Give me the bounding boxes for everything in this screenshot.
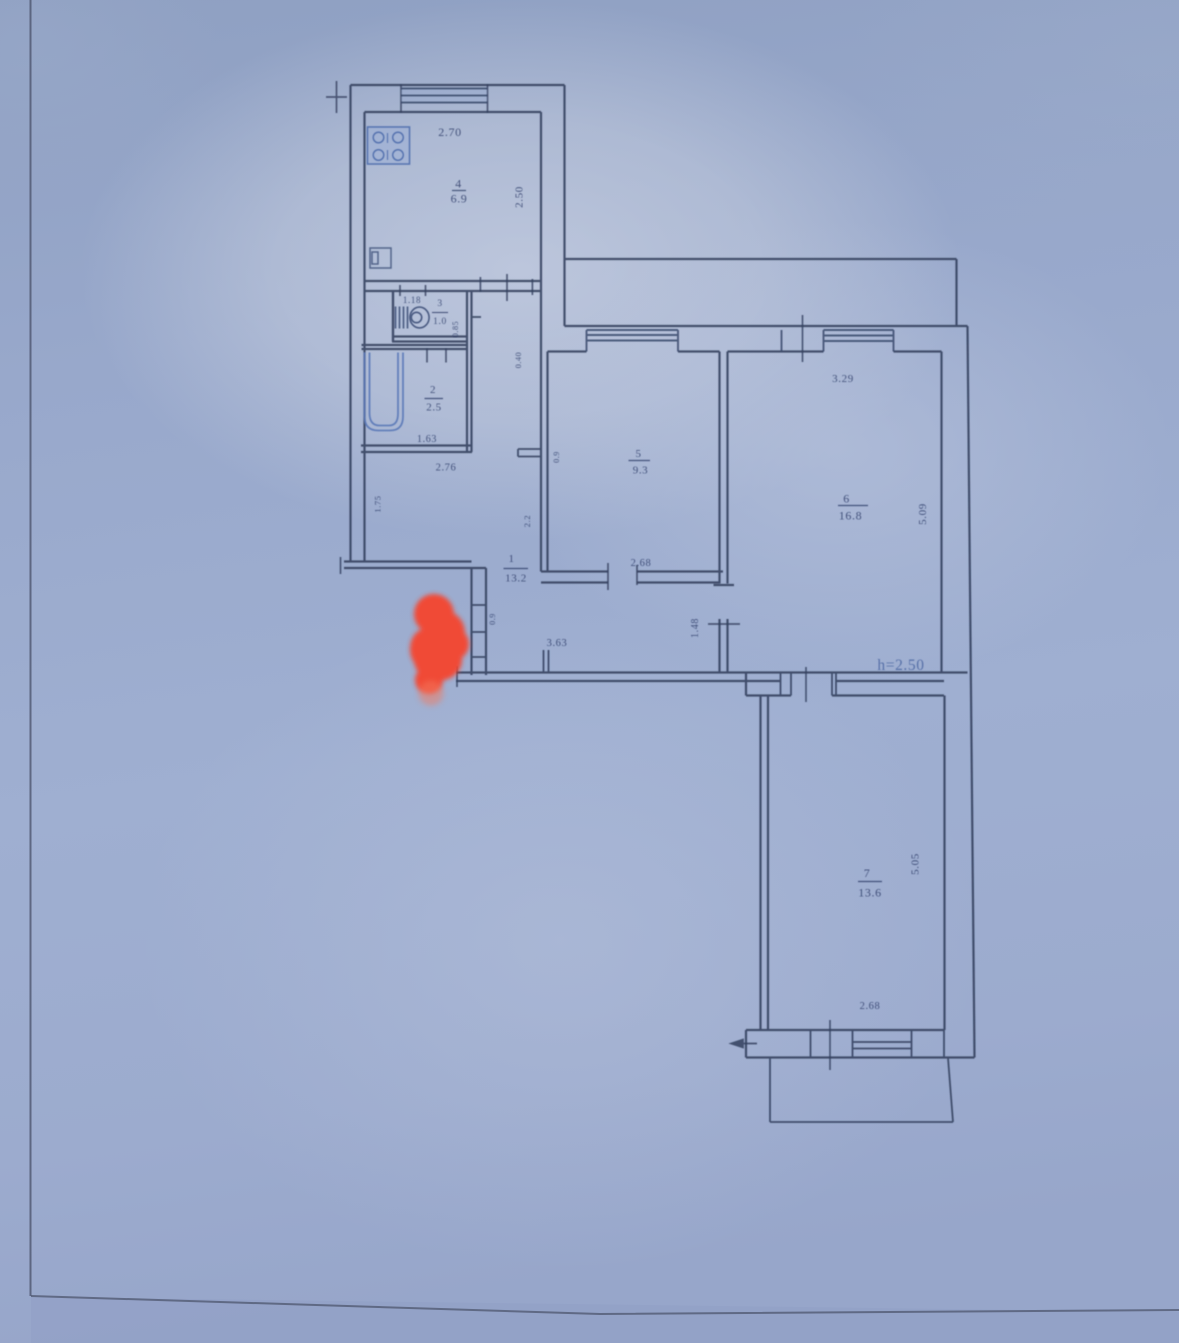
svg-text:0.9: 0.9: [488, 613, 497, 625]
svg-text:3.63: 3.63: [547, 638, 568, 649]
svg-text:2.68: 2.68: [631, 558, 652, 569]
svg-text:2.76: 2.76: [436, 463, 457, 474]
svg-text:3.29: 3.29: [832, 373, 854, 385]
svg-text:1: 1: [508, 553, 514, 565]
svg-text:2.2: 2.2: [522, 515, 532, 527]
svg-text:1.75: 1.75: [373, 495, 383, 512]
svg-text:1.63: 1.63: [417, 434, 437, 445]
svg-text:0.85: 0.85: [451, 321, 460, 337]
svg-text:5.09: 5.09: [917, 503, 929, 525]
svg-text:5: 5: [635, 448, 641, 460]
svg-text:6.9: 6.9: [451, 192, 468, 206]
svg-text:2.50: 2.50: [514, 186, 526, 208]
svg-text:2.70: 2.70: [438, 125, 461, 139]
svg-text:13.6: 13.6: [858, 886, 881, 900]
svg-text:2.5: 2.5: [426, 402, 442, 414]
svg-text:1.0: 1.0: [433, 317, 447, 327]
svg-text:9.3: 9.3: [633, 465, 649, 477]
svg-text:1.48: 1.48: [690, 618, 701, 638]
svg-text:2: 2: [430, 384, 436, 396]
svg-text:5.05: 5.05: [910, 853, 922, 875]
svg-text:1.18: 1.18: [403, 295, 421, 305]
svg-text:0.9: 0.9: [552, 451, 561, 463]
svg-text:h=2.50: h=2.50: [877, 657, 924, 674]
svg-text:2.68: 2.68: [860, 1001, 881, 1012]
svg-text:0.40: 0.40: [514, 352, 523, 368]
svg-text:6: 6: [843, 492, 850, 506]
svg-text:7: 7: [864, 866, 871, 880]
svg-text:16.8: 16.8: [839, 509, 862, 523]
svg-text:3: 3: [437, 299, 442, 309]
svg-text:4: 4: [455, 177, 462, 191]
svg-text:13.2: 13.2: [505, 573, 527, 585]
